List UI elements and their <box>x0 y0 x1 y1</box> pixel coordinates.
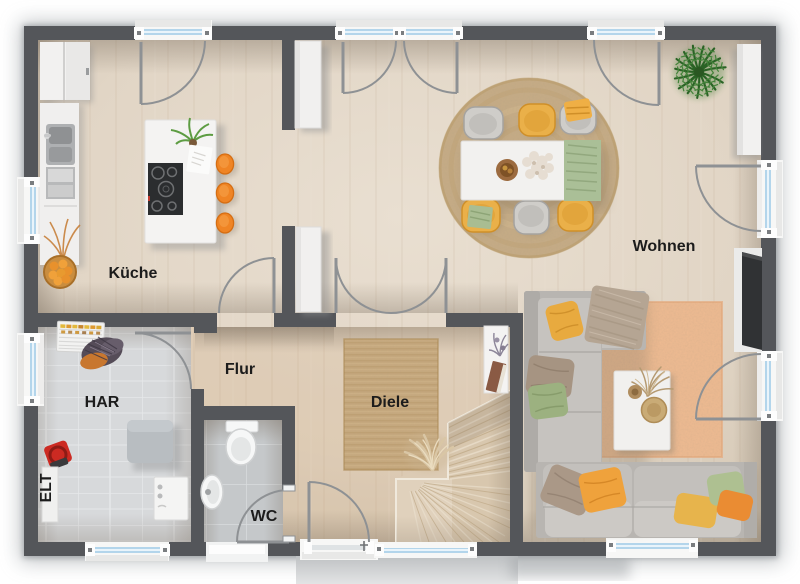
svg-text:ELT: ELT <box>38 473 55 502</box>
svg-text:WC: WC <box>251 508 278 525</box>
svg-text:Flur: Flur <box>225 361 255 378</box>
svg-text:Wohnen: Wohnen <box>633 238 696 255</box>
svg-text:HAR: HAR <box>85 394 120 411</box>
svg-text:Küche: Küche <box>109 265 158 282</box>
svg-text:Diele: Diele <box>371 394 409 411</box>
